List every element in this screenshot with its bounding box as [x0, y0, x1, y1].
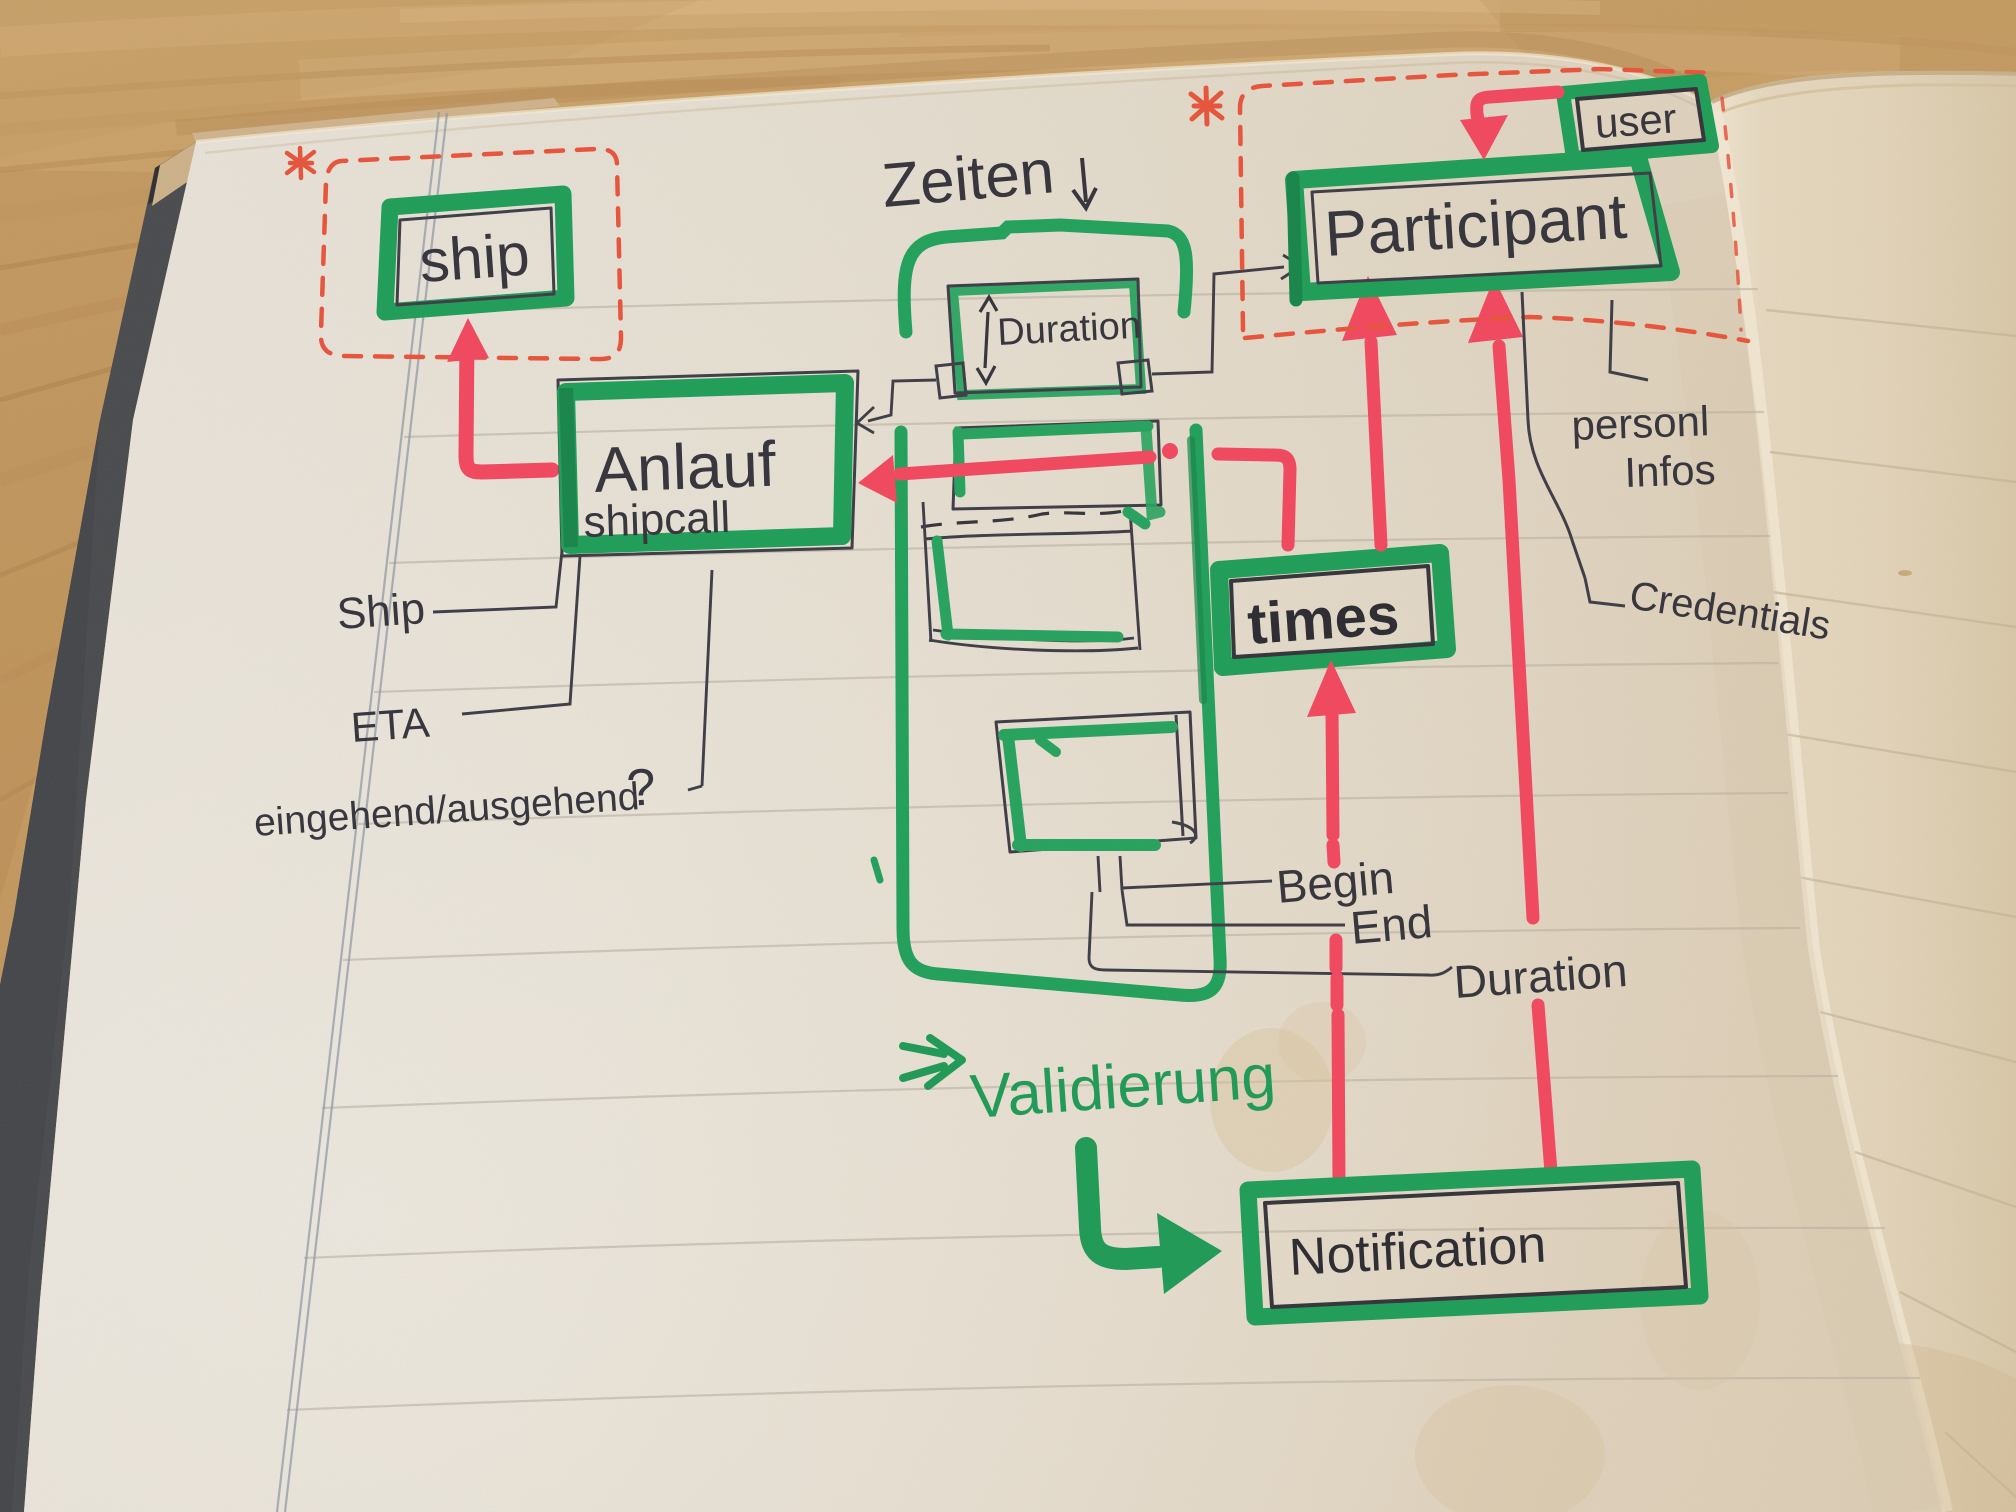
- svg-text:End: End: [1348, 895, 1434, 954]
- svg-text:times: times: [1245, 582, 1401, 657]
- svg-text:ETA: ETA: [349, 699, 431, 751]
- svg-text:?: ?: [625, 758, 658, 818]
- svg-text:user: user: [1593, 94, 1678, 147]
- svg-text:Duration: Duration: [996, 305, 1142, 354]
- svg-text:Infos: Infos: [1624, 446, 1717, 496]
- svg-text:shipcall: shipcall: [583, 493, 731, 547]
- svg-text:ship: ship: [417, 220, 531, 295]
- svg-text:Ship: Ship: [335, 584, 426, 639]
- svg-text:personl: personl: [1571, 397, 1710, 449]
